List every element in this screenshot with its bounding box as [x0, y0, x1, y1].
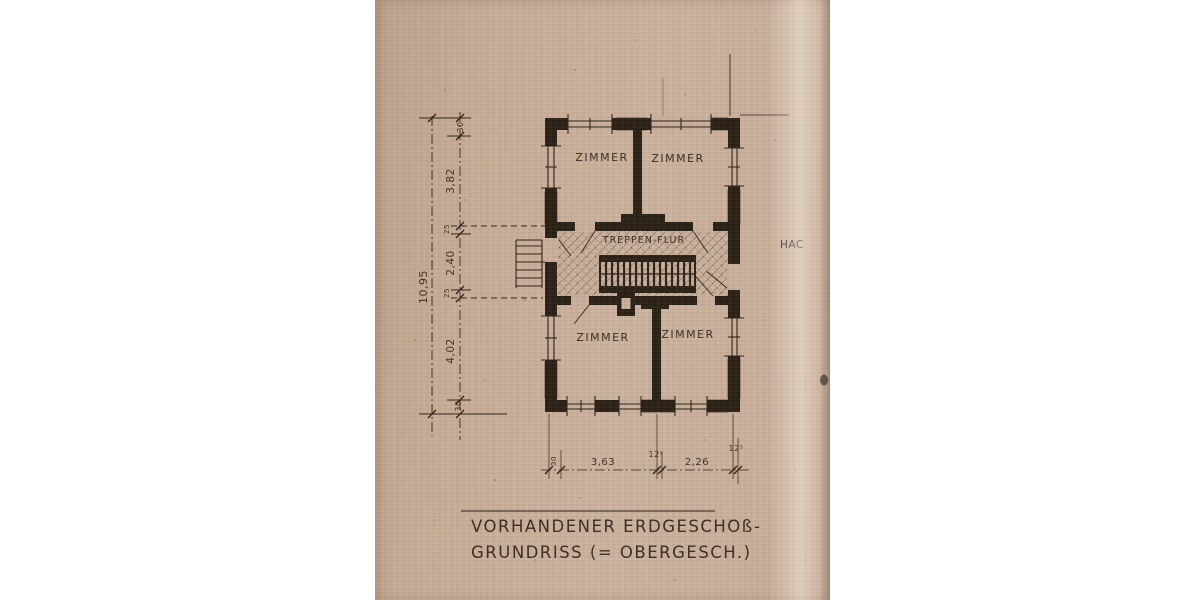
title-line-2: GRUNDRISS (= OBERGESCH.)	[471, 543, 752, 562]
partition-bottom	[652, 305, 661, 400]
room-label-top-right: ZIMMER	[651, 152, 704, 165]
dimension-bottom	[541, 414, 749, 484]
dim-bottom-0: 30	[550, 456, 558, 466]
window-bottom-left	[567, 396, 595, 416]
window-right-upper	[724, 148, 744, 186]
dim-left-1: 3,82	[445, 168, 457, 193]
window-right-lower	[724, 318, 744, 356]
dim-left-2: 25	[443, 224, 451, 234]
photographed-page: 10,95 30 3,82 25 2,40 25 4,02 30	[375, 0, 830, 600]
partition-bottom-foot	[641, 296, 669, 309]
dimension-bottom-labels: 30 3,63 12⁵ 2,26 12⁵	[550, 444, 743, 468]
dim-left-3: 2,40	[445, 250, 457, 275]
margin-note: HAC	[780, 239, 804, 251]
window-bottom-right	[675, 396, 707, 416]
partition-top	[633, 130, 642, 222]
dim-bottom-1: 3,63	[591, 457, 615, 468]
title-line-1: VORHANDENER ERDGESCHOß-	[471, 517, 761, 536]
dim-overall: 10,95	[417, 270, 430, 304]
dim-bottom-3: 2,26	[685, 457, 709, 468]
dim-bottom-4: 12⁵	[729, 444, 744, 453]
page-blemish	[820, 375, 828, 386]
window-left-lower	[541, 316, 561, 360]
window-top-right	[651, 114, 711, 134]
partition-top-foot	[621, 214, 665, 222]
room-label-top-left: ZIMMER	[575, 151, 628, 164]
dim-left-0: 30	[456, 121, 465, 132]
hall-label: TREPPEN-FLUR	[602, 235, 685, 246]
dim-left-4: 25	[443, 288, 451, 298]
entrance-steps	[516, 240, 545, 288]
dim-left-6: 30	[454, 400, 463, 411]
dim-left-5: 4,02	[445, 338, 457, 363]
title-block: VORHANDENER ERDGESCHOß- GRUNDRISS (= OBE…	[461, 511, 761, 562]
window-left-upper	[541, 146, 561, 188]
room-label-bottom-left: ZIMMER	[576, 331, 629, 344]
dimension-left	[419, 112, 555, 440]
stair-stub-notch	[622, 298, 631, 309]
dim-bottom-2: 12⁵	[649, 450, 664, 459]
staircase	[600, 256, 695, 292]
floor-plan-drawing: 10,95 30 3,82 25 2,40 25 4,02 30	[375, 0, 830, 600]
screenshot-root: 10,95 30 3,82 25 2,40 25 4,02 30	[0, 0, 1200, 600]
window-bottom-mid	[619, 396, 641, 416]
room-label-bottom-right: ZIMMER	[661, 328, 714, 341]
dimension-left-labels: 10,95 30 3,82 25 2,40 25 4,02 30	[417, 121, 465, 411]
window-top-left	[568, 114, 612, 134]
extension-lines-top	[663, 54, 789, 116]
